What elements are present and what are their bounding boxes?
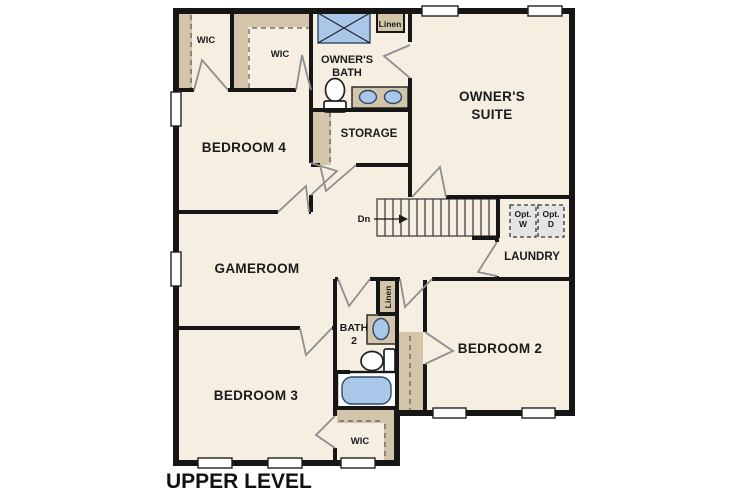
label-wic-bottom: WIC bbox=[351, 436, 370, 447]
window bbox=[341, 458, 375, 468]
label-wic-top-left: WIC bbox=[197, 35, 216, 46]
window bbox=[171, 92, 181, 126]
label-laundry: LAUNDRY bbox=[504, 251, 560, 263]
svg-text:2: 2 bbox=[351, 335, 357, 347]
label-gameroom: GAMEROOM bbox=[215, 261, 300, 276]
floor-plan-drawing: WIC WIC Linen OWNER'S BATH OWNER'S SUITE… bbox=[0, 0, 750, 500]
label-opt-dryer: Opt. bbox=[543, 209, 560, 219]
window bbox=[522, 408, 555, 418]
window bbox=[198, 458, 232, 468]
sink bbox=[373, 319, 389, 340]
sink bbox=[385, 91, 402, 104]
label-owners-bath: OWNER'S bbox=[321, 54, 373, 66]
bathtub bbox=[337, 372, 397, 408]
bath2-toilet bbox=[361, 349, 395, 373]
label-linen-upper: Linen bbox=[379, 19, 402, 29]
shower bbox=[318, 13, 370, 43]
sink bbox=[360, 91, 377, 104]
svg-text:BATH: BATH bbox=[332, 67, 362, 79]
svg-text:W: W bbox=[519, 219, 528, 229]
label-stairs-dn: Dn bbox=[358, 214, 371, 225]
label-bedroom3: BEDROOM 3 bbox=[214, 388, 299, 403]
label-owners-suite: OWNER'S bbox=[459, 89, 525, 104]
svg-text:SUITE: SUITE bbox=[471, 107, 512, 122]
label-bath2: BATH bbox=[340, 322, 368, 334]
level-title: UPPER LEVEL bbox=[166, 470, 312, 493]
window bbox=[433, 408, 466, 418]
window bbox=[422, 6, 458, 16]
label-wic-top-mid: WIC bbox=[271, 49, 290, 60]
label-linen-bath2: Linen bbox=[383, 286, 393, 309]
window bbox=[268, 458, 302, 468]
window bbox=[171, 252, 181, 286]
svg-text:D: D bbox=[548, 219, 554, 229]
label-bedroom4: BEDROOM 4 bbox=[202, 140, 287, 155]
bath2-vanity bbox=[367, 315, 397, 344]
label-opt-washer: Opt. bbox=[515, 209, 532, 219]
label-bedroom2: BEDROOM 2 bbox=[458, 341, 542, 356]
window bbox=[528, 6, 562, 16]
owners-bath-vanity bbox=[352, 87, 408, 108]
label-storage: STORAGE bbox=[341, 128, 398, 140]
floor-plan-page: WIC WIC Linen OWNER'S BATH OWNER'S SUITE… bbox=[0, 0, 750, 500]
owners-bath-toilet bbox=[324, 79, 346, 113]
